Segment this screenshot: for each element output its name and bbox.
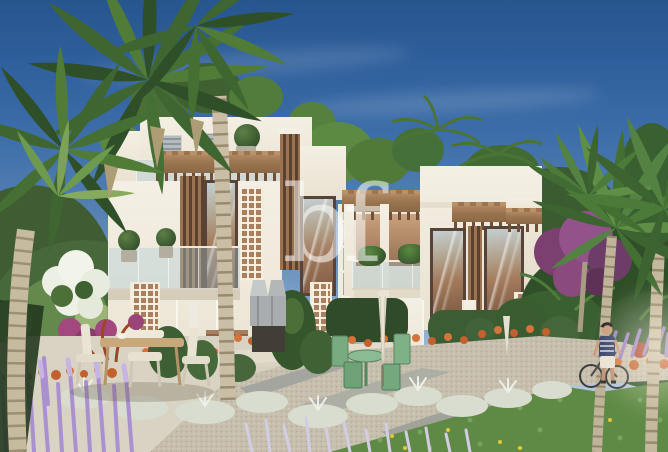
white-bougainvillea [42,250,110,319]
foreground-landscape [0,0,668,452]
bbq-station [250,280,286,352]
listing-photo: bf [0,0,668,452]
left-palm-crown [0,0,295,254]
